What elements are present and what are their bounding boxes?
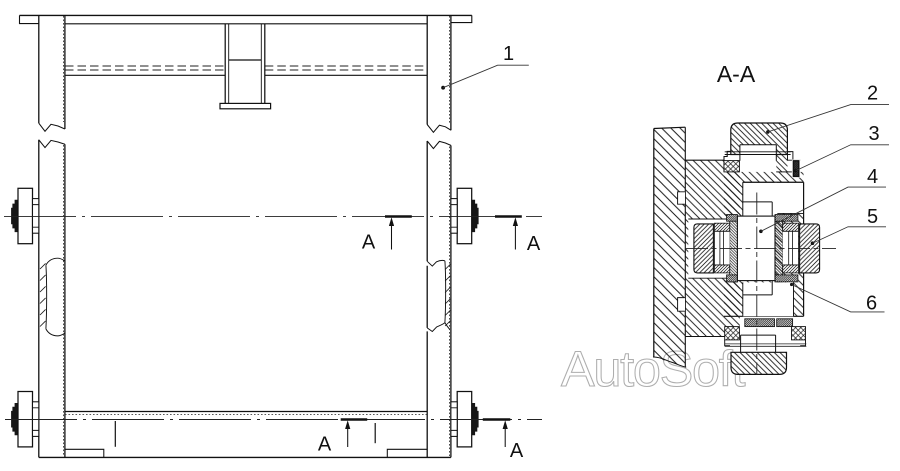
svg-text:5: 5 bbox=[867, 206, 878, 228]
svg-text:A-A: A-A bbox=[717, 61, 756, 87]
svg-text:4: 4 bbox=[867, 166, 878, 188]
svg-text:A: A bbox=[527, 233, 541, 255]
svg-text:A: A bbox=[510, 440, 524, 462]
svg-text:3: 3 bbox=[868, 123, 879, 145]
svg-text:A: A bbox=[362, 232, 376, 254]
svg-text:A: A bbox=[318, 434, 332, 456]
svg-text:6: 6 bbox=[866, 293, 877, 315]
svg-text:2: 2 bbox=[867, 83, 878, 105]
svg-text:1: 1 bbox=[503, 43, 514, 65]
